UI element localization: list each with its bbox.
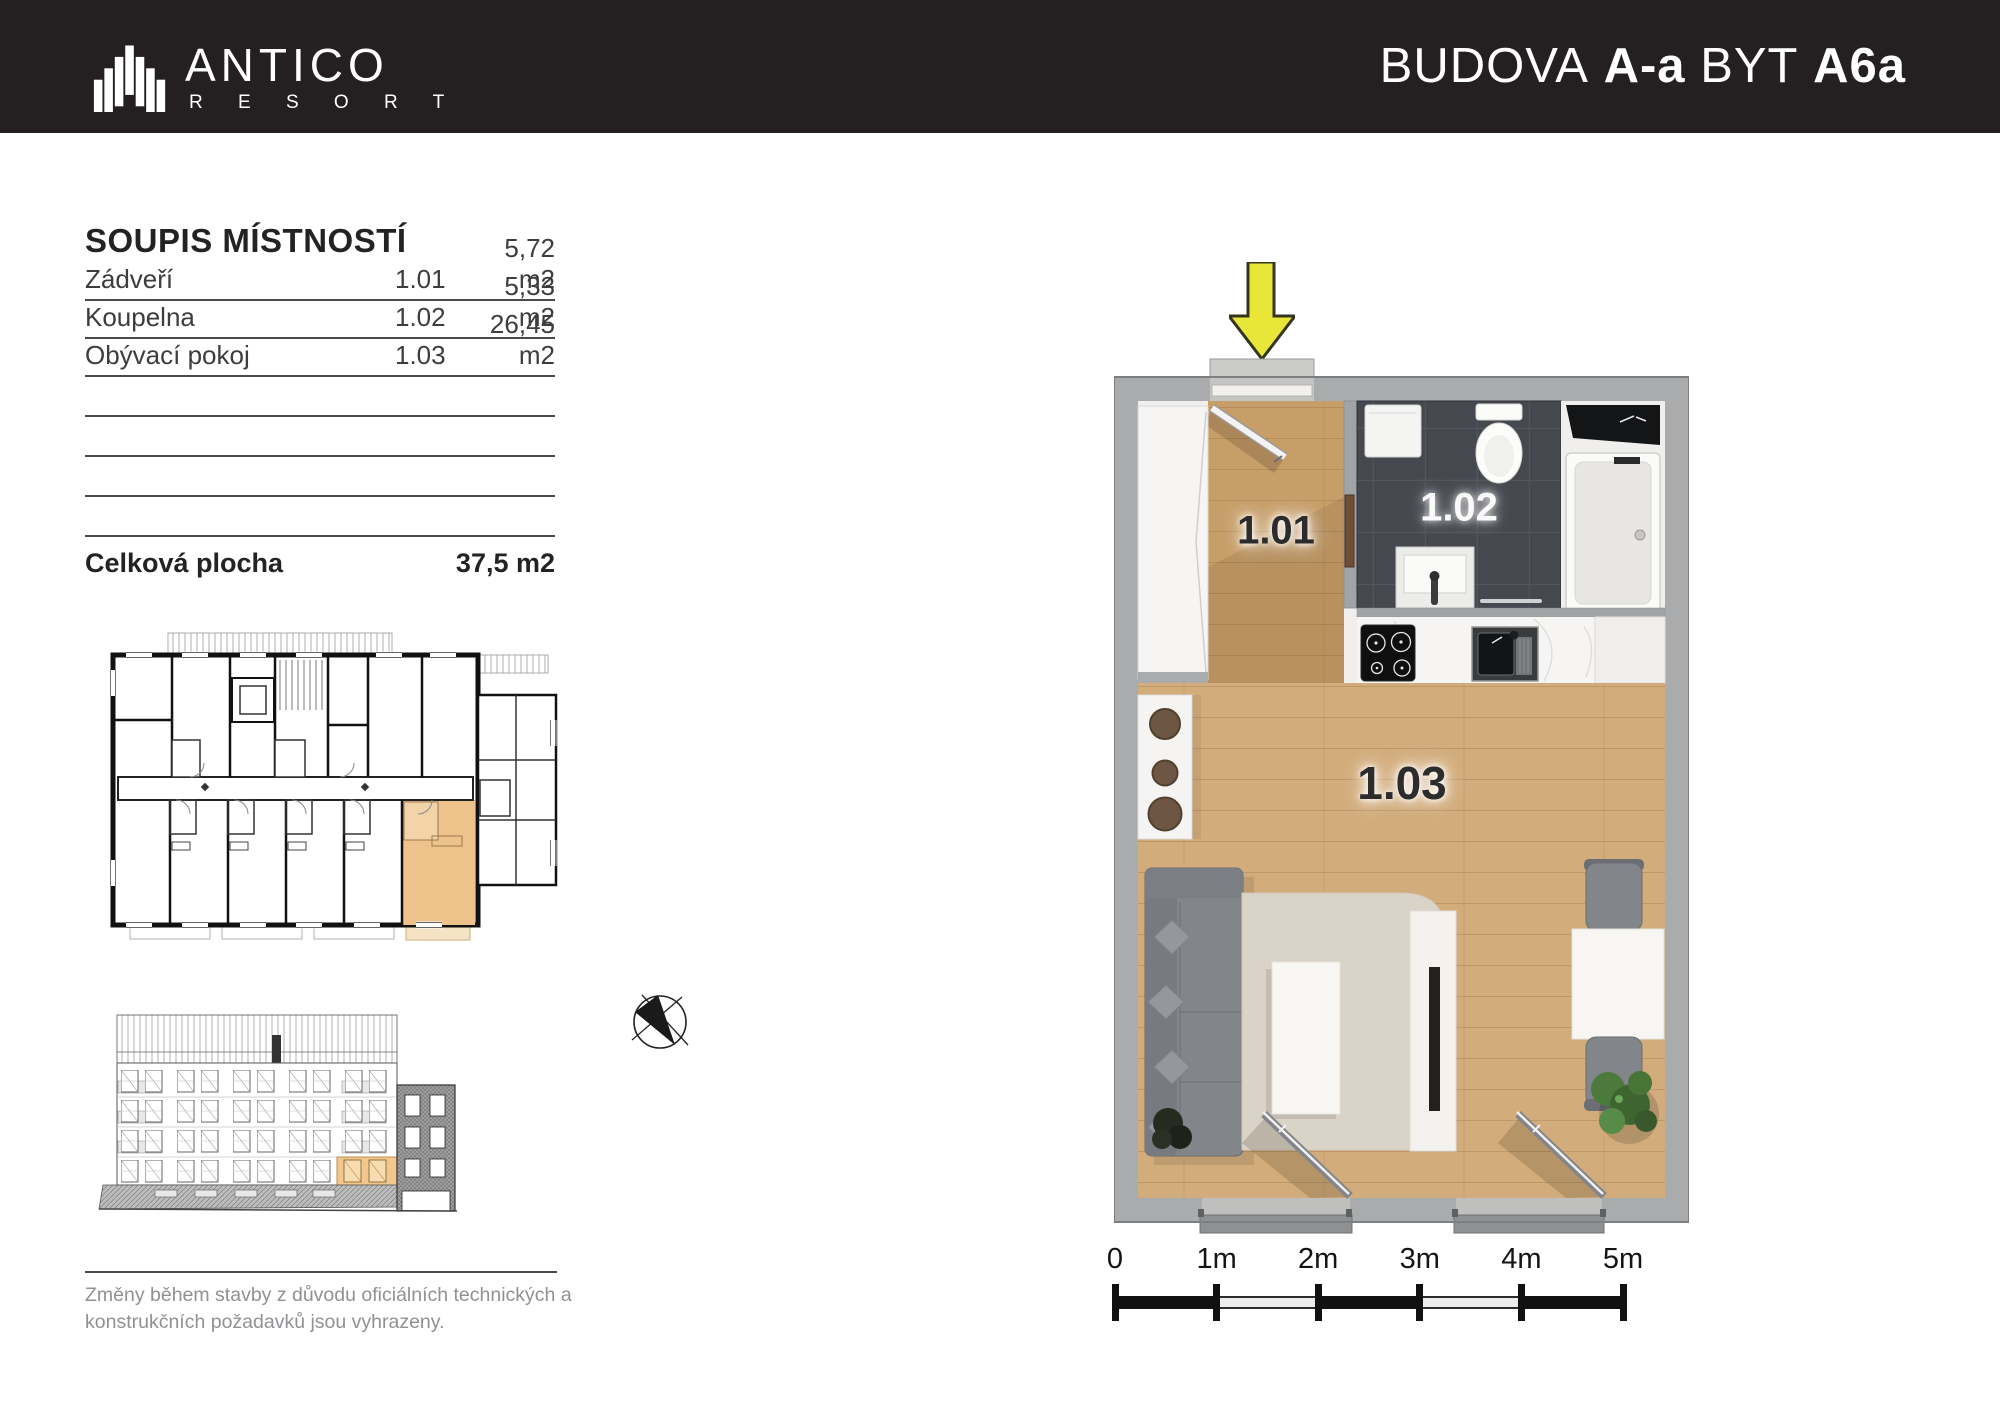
room-list-title: SOUPIS MÍSTNOSTÍ — [85, 222, 407, 260]
coffee-table — [1266, 962, 1340, 1119]
empty-table-row — [85, 377, 555, 417]
total-row: Celková plocha 37,5 m2 — [85, 537, 555, 579]
scale-label: 0 — [1107, 1243, 1123, 1276]
scale-label: 3m — [1400, 1243, 1440, 1276]
kitchen-counter — [1357, 617, 1665, 683]
toilet — [1476, 404, 1522, 483]
building-elevation-drawing — [95, 1008, 465, 1223]
wardrobe — [1138, 406, 1208, 700]
brand-name: ANTICO — [185, 42, 459, 88]
empty-table-row — [85, 457, 555, 497]
brand-subtitle: R E S O R T — [185, 92, 459, 114]
tv-console — [1410, 911, 1456, 1151]
bathtub — [1566, 453, 1660, 613]
table-row: Obývací pokoj 1.03 26,45 m2 — [85, 339, 555, 377]
room-name: Obývací pokoj — [85, 340, 395, 371]
room-number: 1.02 — [395, 302, 465, 333]
room-area: 26,45 m2 — [465, 309, 555, 371]
highlighted-unit-elevation — [337, 1157, 397, 1185]
towel-rail — [1480, 599, 1542, 603]
room-label-102: 1.02 — [1420, 486, 1498, 531]
cooktop — [1361, 625, 1415, 681]
scale-label: 2m — [1298, 1243, 1338, 1276]
room-name: Zádveří — [85, 264, 395, 295]
kitchen-sink — [1472, 627, 1538, 681]
disclaimer-text: Změny během stavby z důvodu oficiálních … — [85, 1282, 605, 1336]
entrance-arrow-icon — [1229, 262, 1295, 361]
total-area: 37,5 m2 — [456, 548, 555, 579]
page: ANTICO R E S O R T BUDOVA A-a BYT A6a SO… — [0, 0, 2000, 1414]
room-label-101: 1.01 — [1237, 509, 1315, 554]
building-stripes-icon — [85, 36, 175, 112]
empty-table-row — [85, 417, 555, 457]
divider-line — [85, 1271, 557, 1273]
scale-bar: 0 1m 2m 3m 4m 5m — [1095, 1243, 1655, 1328]
floor-overview-drawing — [110, 630, 560, 950]
bathtub-zone — [1561, 401, 1665, 615]
brand-logo: ANTICO R E S O R T — [85, 36, 459, 114]
bathroom-sink — [1396, 547, 1474, 608]
empty-table-row — [85, 497, 555, 537]
header-bar: ANTICO R E S O R T BUDOVA A-a BYT A6a — [0, 0, 2000, 133]
total-label: Celková plocha — [85, 548, 456, 579]
scale-label: 5m — [1603, 1243, 1643, 1276]
room-label-103: 1.03 — [1357, 756, 1447, 810]
room-number: 1.03 — [395, 340, 465, 371]
tv — [1429, 967, 1440, 1111]
room-name: Koupelna — [85, 302, 395, 333]
scale-label: 1m — [1196, 1243, 1236, 1276]
room-list-table: Zádveří 1.01 5,72 m2 Koupelna 1.02 5,33 … — [85, 264, 555, 579]
plant-shelf — [1138, 695, 1201, 839]
room-number: 1.01 — [395, 264, 465, 295]
page-title: BUDOVA A-a BYT A6a — [1380, 0, 1906, 133]
north-compass-icon — [628, 988, 696, 1058]
scale-label: 4m — [1501, 1243, 1541, 1276]
